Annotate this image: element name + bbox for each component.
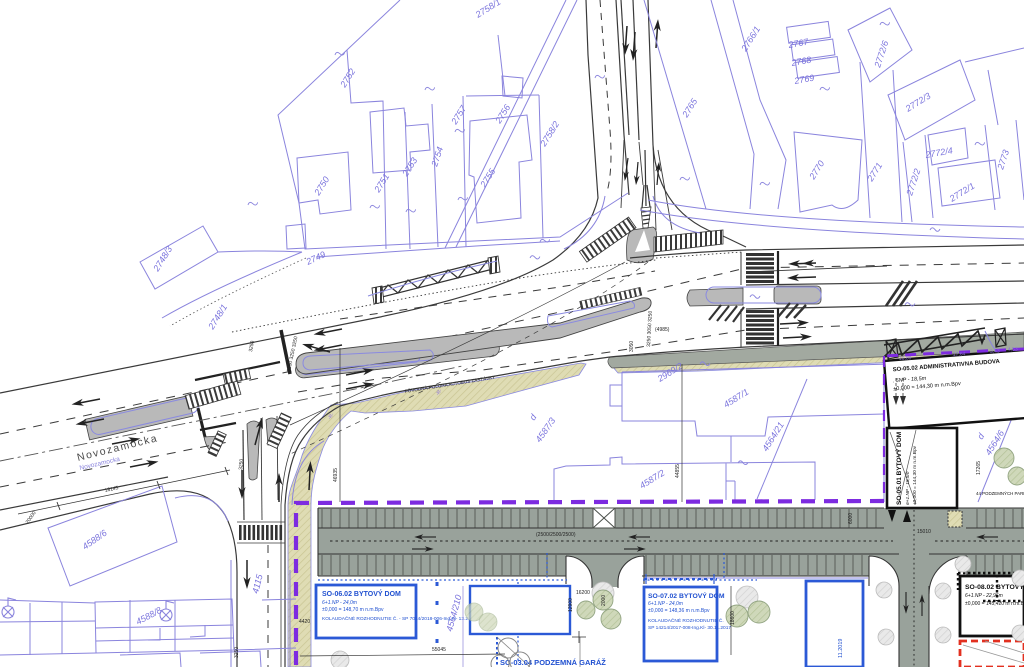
svg-text:6+1.NP - 22,96m: 6+1.NP - 22,96m <box>965 593 1003 599</box>
svg-text:(2500/2500/2500): (2500/2500/2500) <box>536 532 576 538</box>
svg-text:46935: 46935 <box>333 468 339 482</box>
svg-text:KOLAUDAČNÉ ROZHODNUTIE Č. - SP: KOLAUDAČNÉ ROZHODNUTIE Č. - SP 7014/2018… <box>322 615 480 622</box>
svg-text:15010: 15010 <box>917 529 931 535</box>
svg-text:±0,000 = 144,30 m n.m.Bpv: ±0,000 = 144,30 m n.m.Bpv <box>912 445 918 505</box>
svg-text:SO-06.02 BYTOVÝ DOM: SO-06.02 BYTOVÝ DOM <box>322 589 401 598</box>
svg-text:44855: 44855 <box>675 464 681 478</box>
svg-text:6+1.NP - 18,5m: 6+1.NP - 18,5m <box>905 471 911 505</box>
svg-text:55045: 55045 <box>432 647 446 653</box>
svg-text:4420: 4420 <box>299 619 310 625</box>
svg-text:±0,000 = 145,420 m n.m.Bpv: ±0,000 = 145,420 m n.m.Bpv <box>965 601 1024 607</box>
svg-text:±0,000 = 148,70 m n.m.Bpv: ±0,000 = 148,70 m n.m.Bpv <box>322 607 384 613</box>
svg-text:SO-05.01 BYTOVÝ DOM: SO-05.01 BYTOVÝ DOM <box>894 432 903 505</box>
svg-text:3250: 3250 <box>234 647 240 658</box>
svg-text:17265: 17265 <box>976 461 982 475</box>
svg-text:2000: 2000 <box>601 595 607 606</box>
svg-text:44 PODZEMNÝCH PARKOV: 44 PODZEMNÝCH PARKOV <box>976 491 1024 496</box>
svg-text:12900: 12900 <box>568 598 574 612</box>
svg-text:~17,64: ~17,64 <box>950 351 966 358</box>
svg-text:16200: 16200 <box>576 590 590 596</box>
svg-text:KOLAUDAČNÉ ROZHODNUTIE Č.: KOLAUDAČNÉ ROZHODNUTIE Č. <box>648 617 724 624</box>
svg-text:6000: 6000 <box>848 513 854 524</box>
svg-text:3,43: 3,43 <box>990 348 1000 355</box>
svg-text:±0,000 = 148,36 m n.m.Bpv: ±0,000 = 148,36 m n.m.Bpv <box>648 608 710 614</box>
svg-text:SO-07.02 BYTOVÝ DOM: SO-07.02 BYTOVÝ DOM <box>648 591 725 600</box>
svg-text:3250: 3250 <box>238 458 245 470</box>
svg-text:6+1.NP - 24,0m: 6+1.NP - 24,0m <box>648 601 683 607</box>
svg-text:SO-03.04 PODZEMNÁ GARÁŽ: SO-03.04 PODZEMNÁ GARÁŽ <box>500 658 606 667</box>
svg-text:SP 14214/2017-008-Ing.Kl- 30.1: SP 14214/2017-008-Ing.Kl- 30.11.2017 <box>648 625 731 631</box>
svg-text:~10,80: ~10,80 <box>896 355 912 362</box>
svg-text:4,53: 4,53 <box>1008 346 1018 353</box>
svg-text:3050: 3050 <box>629 341 635 352</box>
svg-text:6+1.NP - 24,0m: 6+1.NP - 24,0m <box>322 600 357 606</box>
svg-text:11.2019: 11.2019 <box>838 639 844 658</box>
svg-text:(4985): (4985) <box>655 327 670 333</box>
